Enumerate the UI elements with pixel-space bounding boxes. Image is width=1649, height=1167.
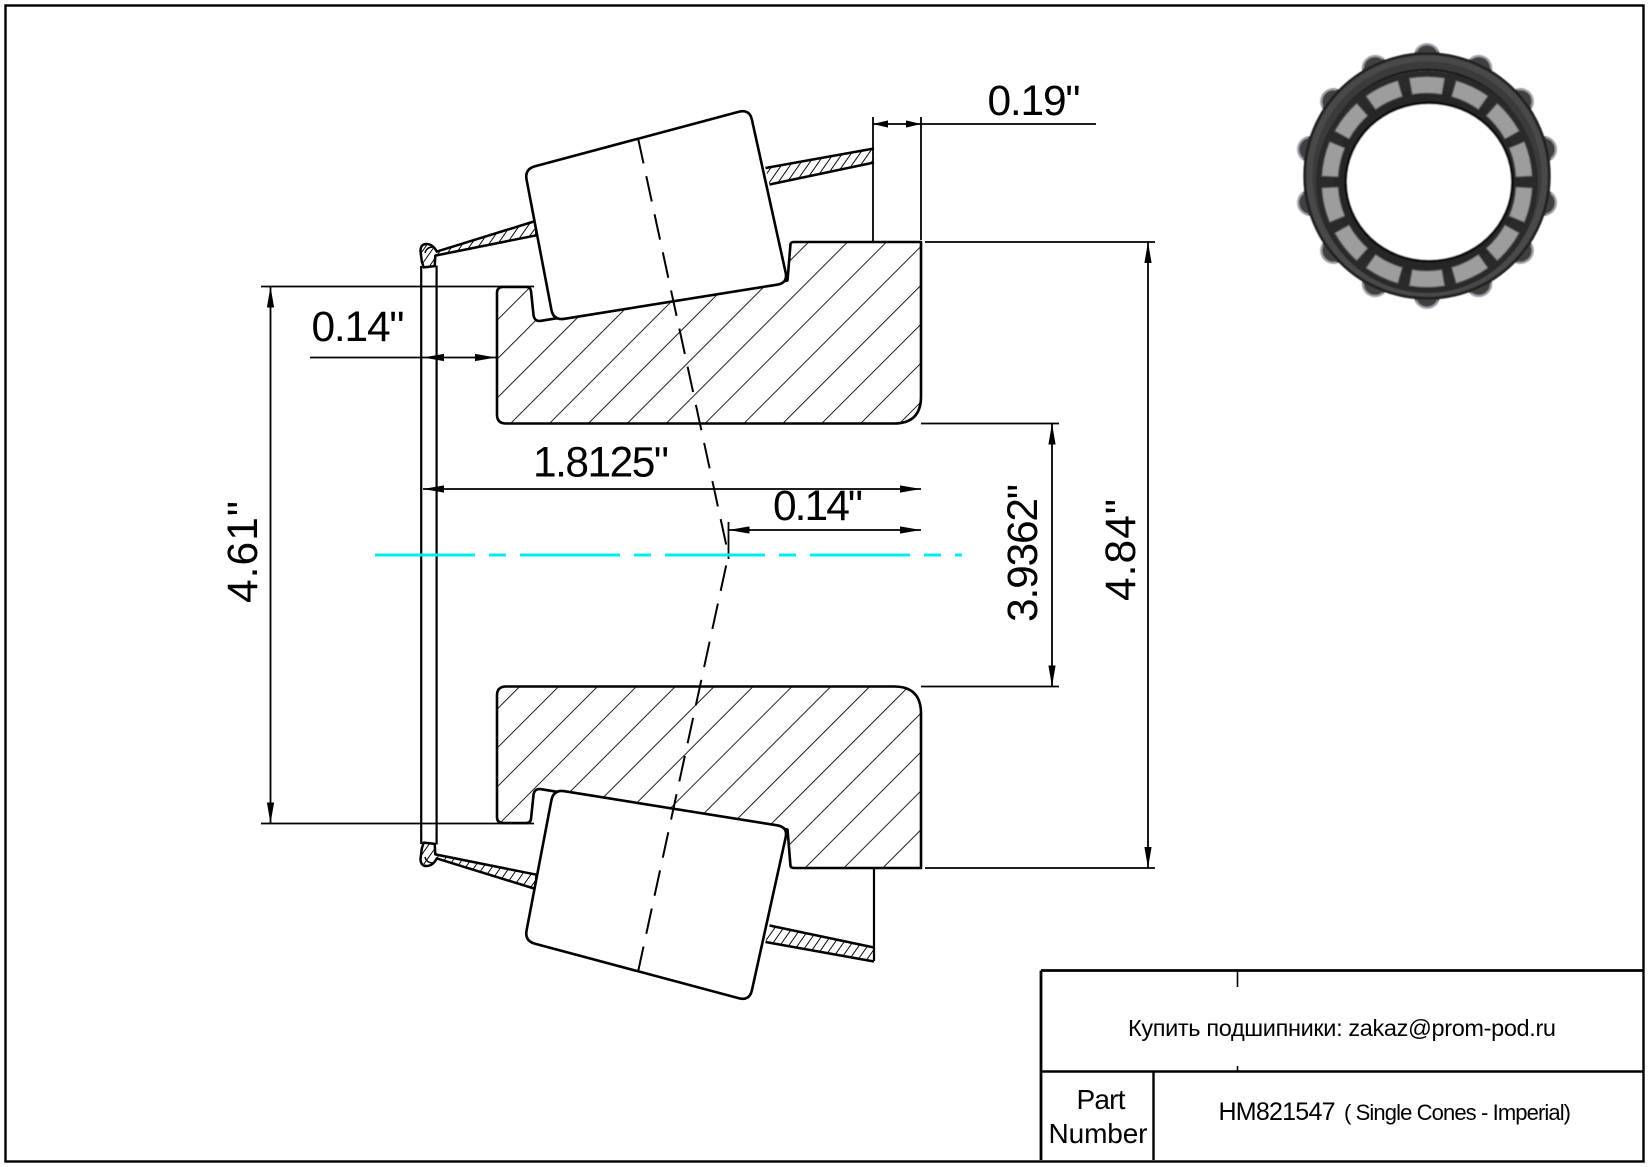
svg-text:4.84": 4.84" [1098,499,1145,601]
svg-text:( Single Cones - Imperial): ( Single Cones - Imperial) [1344,1100,1571,1125]
svg-text:4.61": 4.61" [220,501,267,603]
svg-text:Part: Part [1077,1084,1126,1115]
svg-text:3.9362": 3.9362" [1000,484,1047,622]
svg-text:Купить подшипники: zakaz@prom-: Купить подшипники: zakaz@prom-pod.ru [1128,1015,1556,1041]
svg-text:HM821547: HM821547 [1219,1098,1336,1126]
svg-text:Number: Number [1049,1118,1148,1149]
svg-text:0.19": 0.19" [988,78,1081,125]
svg-text:1.8125": 1.8125" [533,440,669,487]
svg-text:0.14": 0.14" [773,483,863,530]
svg-text:0.14": 0.14" [312,304,405,351]
